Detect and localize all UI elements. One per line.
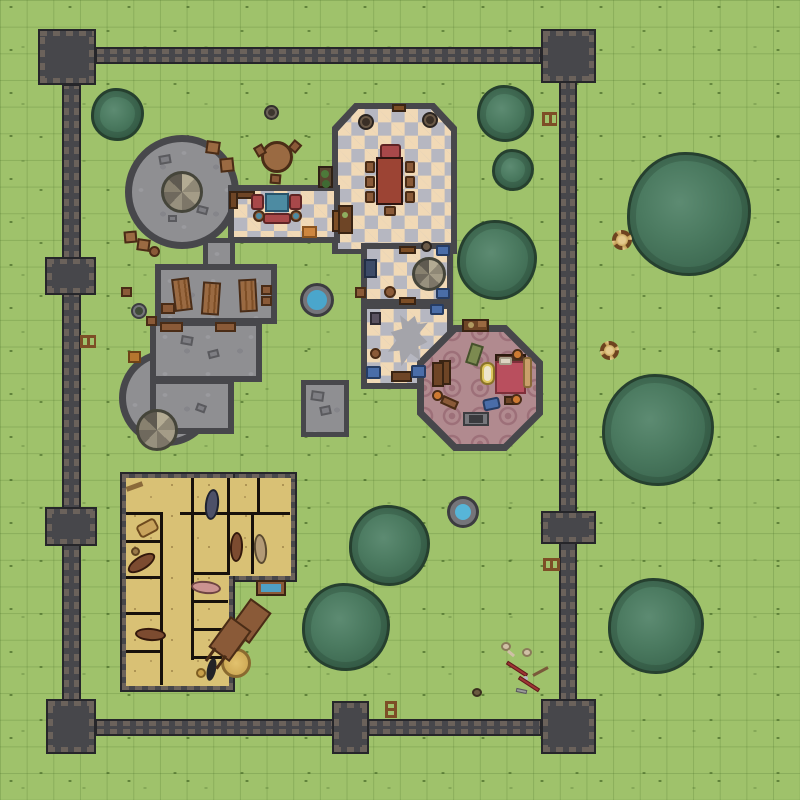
beetle xyxy=(472,688,482,697)
blue-chair xyxy=(411,365,426,378)
tree xyxy=(477,85,534,142)
hall-brazier-coal xyxy=(362,118,370,126)
perimeter-wall-bottom xyxy=(95,719,542,736)
parlor-sofa xyxy=(263,213,291,224)
planter-greens xyxy=(322,180,330,188)
teddy-bear xyxy=(370,348,381,359)
parlor-armchair-left xyxy=(251,194,264,210)
perimeter-wall-east xyxy=(559,81,577,702)
blue-chest xyxy=(430,304,444,315)
sunflower xyxy=(612,230,632,250)
dining-chair xyxy=(365,161,375,173)
stall-divider xyxy=(126,650,162,653)
tree-large xyxy=(627,152,751,276)
door-mat xyxy=(302,226,317,238)
side-table-bowl xyxy=(293,213,299,219)
stone-slab xyxy=(168,215,177,222)
stall-divider xyxy=(126,512,163,515)
corner-tower-nw xyxy=(38,29,96,85)
battle-map xyxy=(0,0,800,800)
stone-slab xyxy=(310,390,324,402)
desk-item xyxy=(468,322,474,328)
tree xyxy=(608,578,704,674)
parlor-desk-leg xyxy=(229,191,238,209)
armor-stand xyxy=(370,312,381,325)
trough-water xyxy=(261,584,281,592)
bedroom-couch xyxy=(523,357,532,388)
tree xyxy=(302,583,390,671)
bedroom-side-desk xyxy=(432,362,444,387)
desk-book xyxy=(478,321,486,327)
cabinet-item xyxy=(342,212,348,218)
crate xyxy=(124,230,138,243)
mid-tower-west-upper xyxy=(45,257,96,295)
stall-divider xyxy=(227,478,230,575)
tree-large xyxy=(602,374,714,486)
crate xyxy=(205,140,221,155)
dining-chair xyxy=(405,161,415,173)
stone-well xyxy=(450,499,476,525)
cauldron-brew xyxy=(135,307,143,315)
spiral-stair-room xyxy=(412,257,446,291)
wall-ladder xyxy=(542,112,557,126)
study-desk xyxy=(391,371,412,382)
courtyard-chair xyxy=(270,174,282,185)
mace xyxy=(516,688,528,694)
wall-shelf xyxy=(160,322,183,332)
stall-divider xyxy=(191,600,228,603)
tree xyxy=(349,505,430,586)
hall-dining-table xyxy=(376,157,403,205)
stall-divider xyxy=(180,512,290,515)
corner-tower-sw xyxy=(46,699,96,754)
dining-chair xyxy=(365,176,375,188)
plant-bloom xyxy=(513,396,520,403)
wall-ladder xyxy=(80,335,96,348)
planter-greens xyxy=(321,170,329,178)
stair-study-door xyxy=(399,297,416,305)
tree xyxy=(91,88,144,141)
crate xyxy=(261,285,272,295)
blue-chest xyxy=(436,245,450,256)
stick xyxy=(532,666,548,677)
stall-divider xyxy=(126,612,162,615)
stall-divider xyxy=(191,572,228,575)
tree xyxy=(492,149,534,191)
work-bench xyxy=(201,281,221,315)
mid-tower-west-lower xyxy=(45,507,97,546)
stall-divider xyxy=(191,478,194,575)
tree xyxy=(457,220,537,300)
hall-stair-room-door xyxy=(399,246,416,254)
barrel xyxy=(149,246,160,257)
mid-tower-east xyxy=(541,511,596,544)
stall-divider xyxy=(160,512,163,685)
small-pond xyxy=(303,286,331,314)
barrel xyxy=(384,286,396,298)
sunflower xyxy=(600,341,619,360)
hall-brazier-coal xyxy=(426,116,434,124)
bone xyxy=(507,650,515,657)
bed xyxy=(495,361,526,394)
chicken xyxy=(131,547,140,556)
spear xyxy=(506,661,528,677)
stall-divider xyxy=(257,478,260,514)
dining-chair xyxy=(405,191,415,203)
plant-bloom xyxy=(434,392,441,399)
fireplace-hearth xyxy=(469,415,483,423)
bed-pillow xyxy=(499,357,512,365)
crate xyxy=(146,316,157,326)
blue-chair xyxy=(366,366,381,379)
stall-divider xyxy=(126,540,162,543)
bathtub-water xyxy=(484,366,491,381)
crate xyxy=(261,296,272,306)
perimeter-wall-top xyxy=(95,47,542,64)
dining-chair xyxy=(365,191,375,203)
crate xyxy=(121,287,132,297)
campfire-coals xyxy=(268,109,275,116)
crate xyxy=(219,157,234,172)
spiral-stair-sw-tower xyxy=(136,409,178,451)
clay-pot xyxy=(421,241,432,252)
dining-chair xyxy=(405,176,415,188)
dining-chair xyxy=(384,206,396,216)
work-bench xyxy=(238,279,258,313)
wall-ladder xyxy=(385,701,397,718)
corner-tower-se xyxy=(541,699,596,754)
crate xyxy=(355,287,366,298)
mid-tower-south xyxy=(332,701,369,754)
blue-chest xyxy=(436,288,450,299)
hall-cabinet xyxy=(338,205,353,234)
corner-tower-ne xyxy=(541,29,596,83)
wall-shelf xyxy=(215,322,236,332)
hall-door-top xyxy=(392,104,406,112)
parlor-table xyxy=(265,193,289,212)
navy-rug xyxy=(364,259,377,278)
perimeter-wall-west xyxy=(62,84,81,702)
chicken xyxy=(196,668,206,678)
orange-crate xyxy=(128,351,141,363)
wall-ladder xyxy=(543,558,560,571)
small-table xyxy=(161,303,175,314)
plant-bloom xyxy=(514,351,521,358)
side-table-bowl xyxy=(256,213,262,219)
skull xyxy=(522,648,532,657)
stone-slab xyxy=(180,335,193,346)
parlor-armchair-right xyxy=(289,194,302,210)
stall-divider xyxy=(126,576,162,579)
